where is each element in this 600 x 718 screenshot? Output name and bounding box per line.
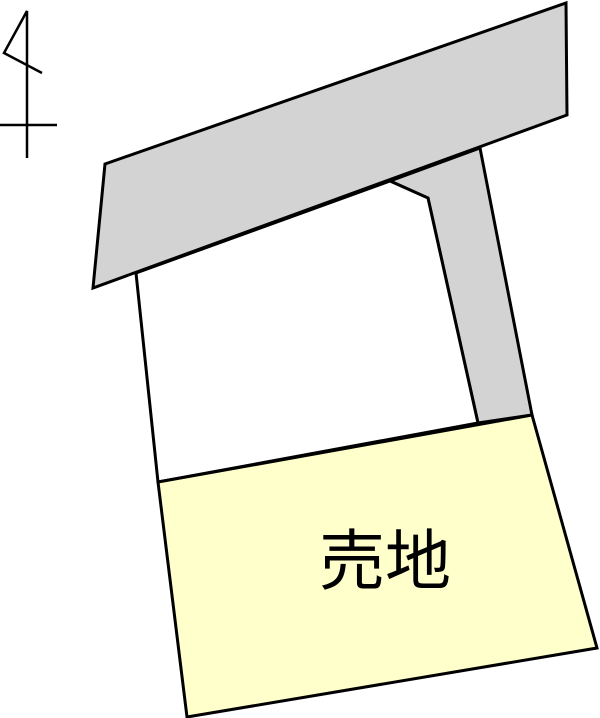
north-arrow-icon [0,11,57,158]
sale-lot-label: 売地 [319,528,451,594]
site-plan-diagram: 売地 [0,0,600,718]
site-plan-canvas [0,0,600,718]
